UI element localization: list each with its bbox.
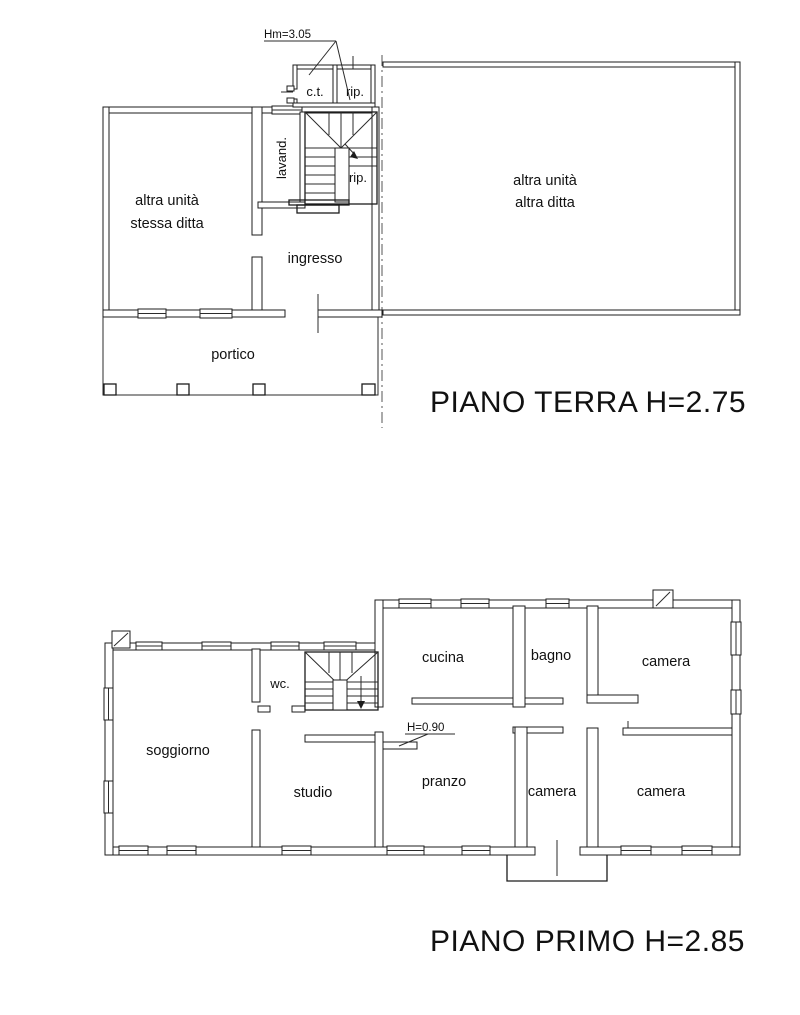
ground-floor-plan: Hm=3.05 c.t. rip. lavand. rip. altra uni…: [103, 29, 746, 428]
ground-floor-title: PIANO TERRA H=2.75: [430, 386, 746, 419]
room-label-cucina: cucina: [422, 650, 465, 666]
room-label-ingresso: ingresso: [288, 251, 343, 267]
room-label-rip-stairs: rip.: [349, 170, 367, 185]
gf-height-note: Hm=3.05: [264, 29, 311, 41]
room-label-rip-top: rip.: [346, 84, 364, 99]
room-label-unit-left-2: stessa ditta: [130, 216, 204, 232]
room-label-camera-top: camera: [642, 654, 691, 670]
gf-staircase: [305, 112, 377, 204]
room-label-studio: studio: [294, 785, 333, 801]
room-label-camera-right: camera: [637, 784, 686, 800]
room-label-portico: portico: [211, 347, 255, 363]
room-label-lavand: lavand.: [274, 137, 289, 179]
ff-chimney-right: [653, 590, 673, 608]
floor-plan-sheet: Hm=3.05 c.t. rip. lavand. rip. altra uni…: [0, 0, 800, 1015]
room-label-unit-left-1: altra unità: [135, 193, 200, 209]
room-label-ct: c.t.: [306, 84, 323, 99]
room-label-bagno: bagno: [531, 648, 571, 664]
room-label-wc: wc.: [269, 676, 290, 691]
ff-chimney-left: [112, 631, 130, 648]
room-label-camera-mid: camera: [528, 784, 577, 800]
room-label-unit-right-1: altra unità: [513, 173, 578, 189]
ff-height-note: H=0.90: [407, 722, 444, 734]
gf-ct-rip-block: [281, 56, 375, 107]
ff-staircase: [305, 652, 378, 710]
room-label-soggiorno: soggiorno: [146, 743, 210, 759]
first-floor-title: PIANO PRIMO H=2.85: [430, 925, 745, 958]
room-label-pranzo: pranzo: [422, 774, 466, 790]
gf-outer-walls: [103, 107, 382, 317]
room-label-unit-right-2: altra ditta: [515, 195, 576, 211]
first-floor-plan: H=0.90 wc. soggiorno studio cucina bagno…: [104, 590, 745, 958]
